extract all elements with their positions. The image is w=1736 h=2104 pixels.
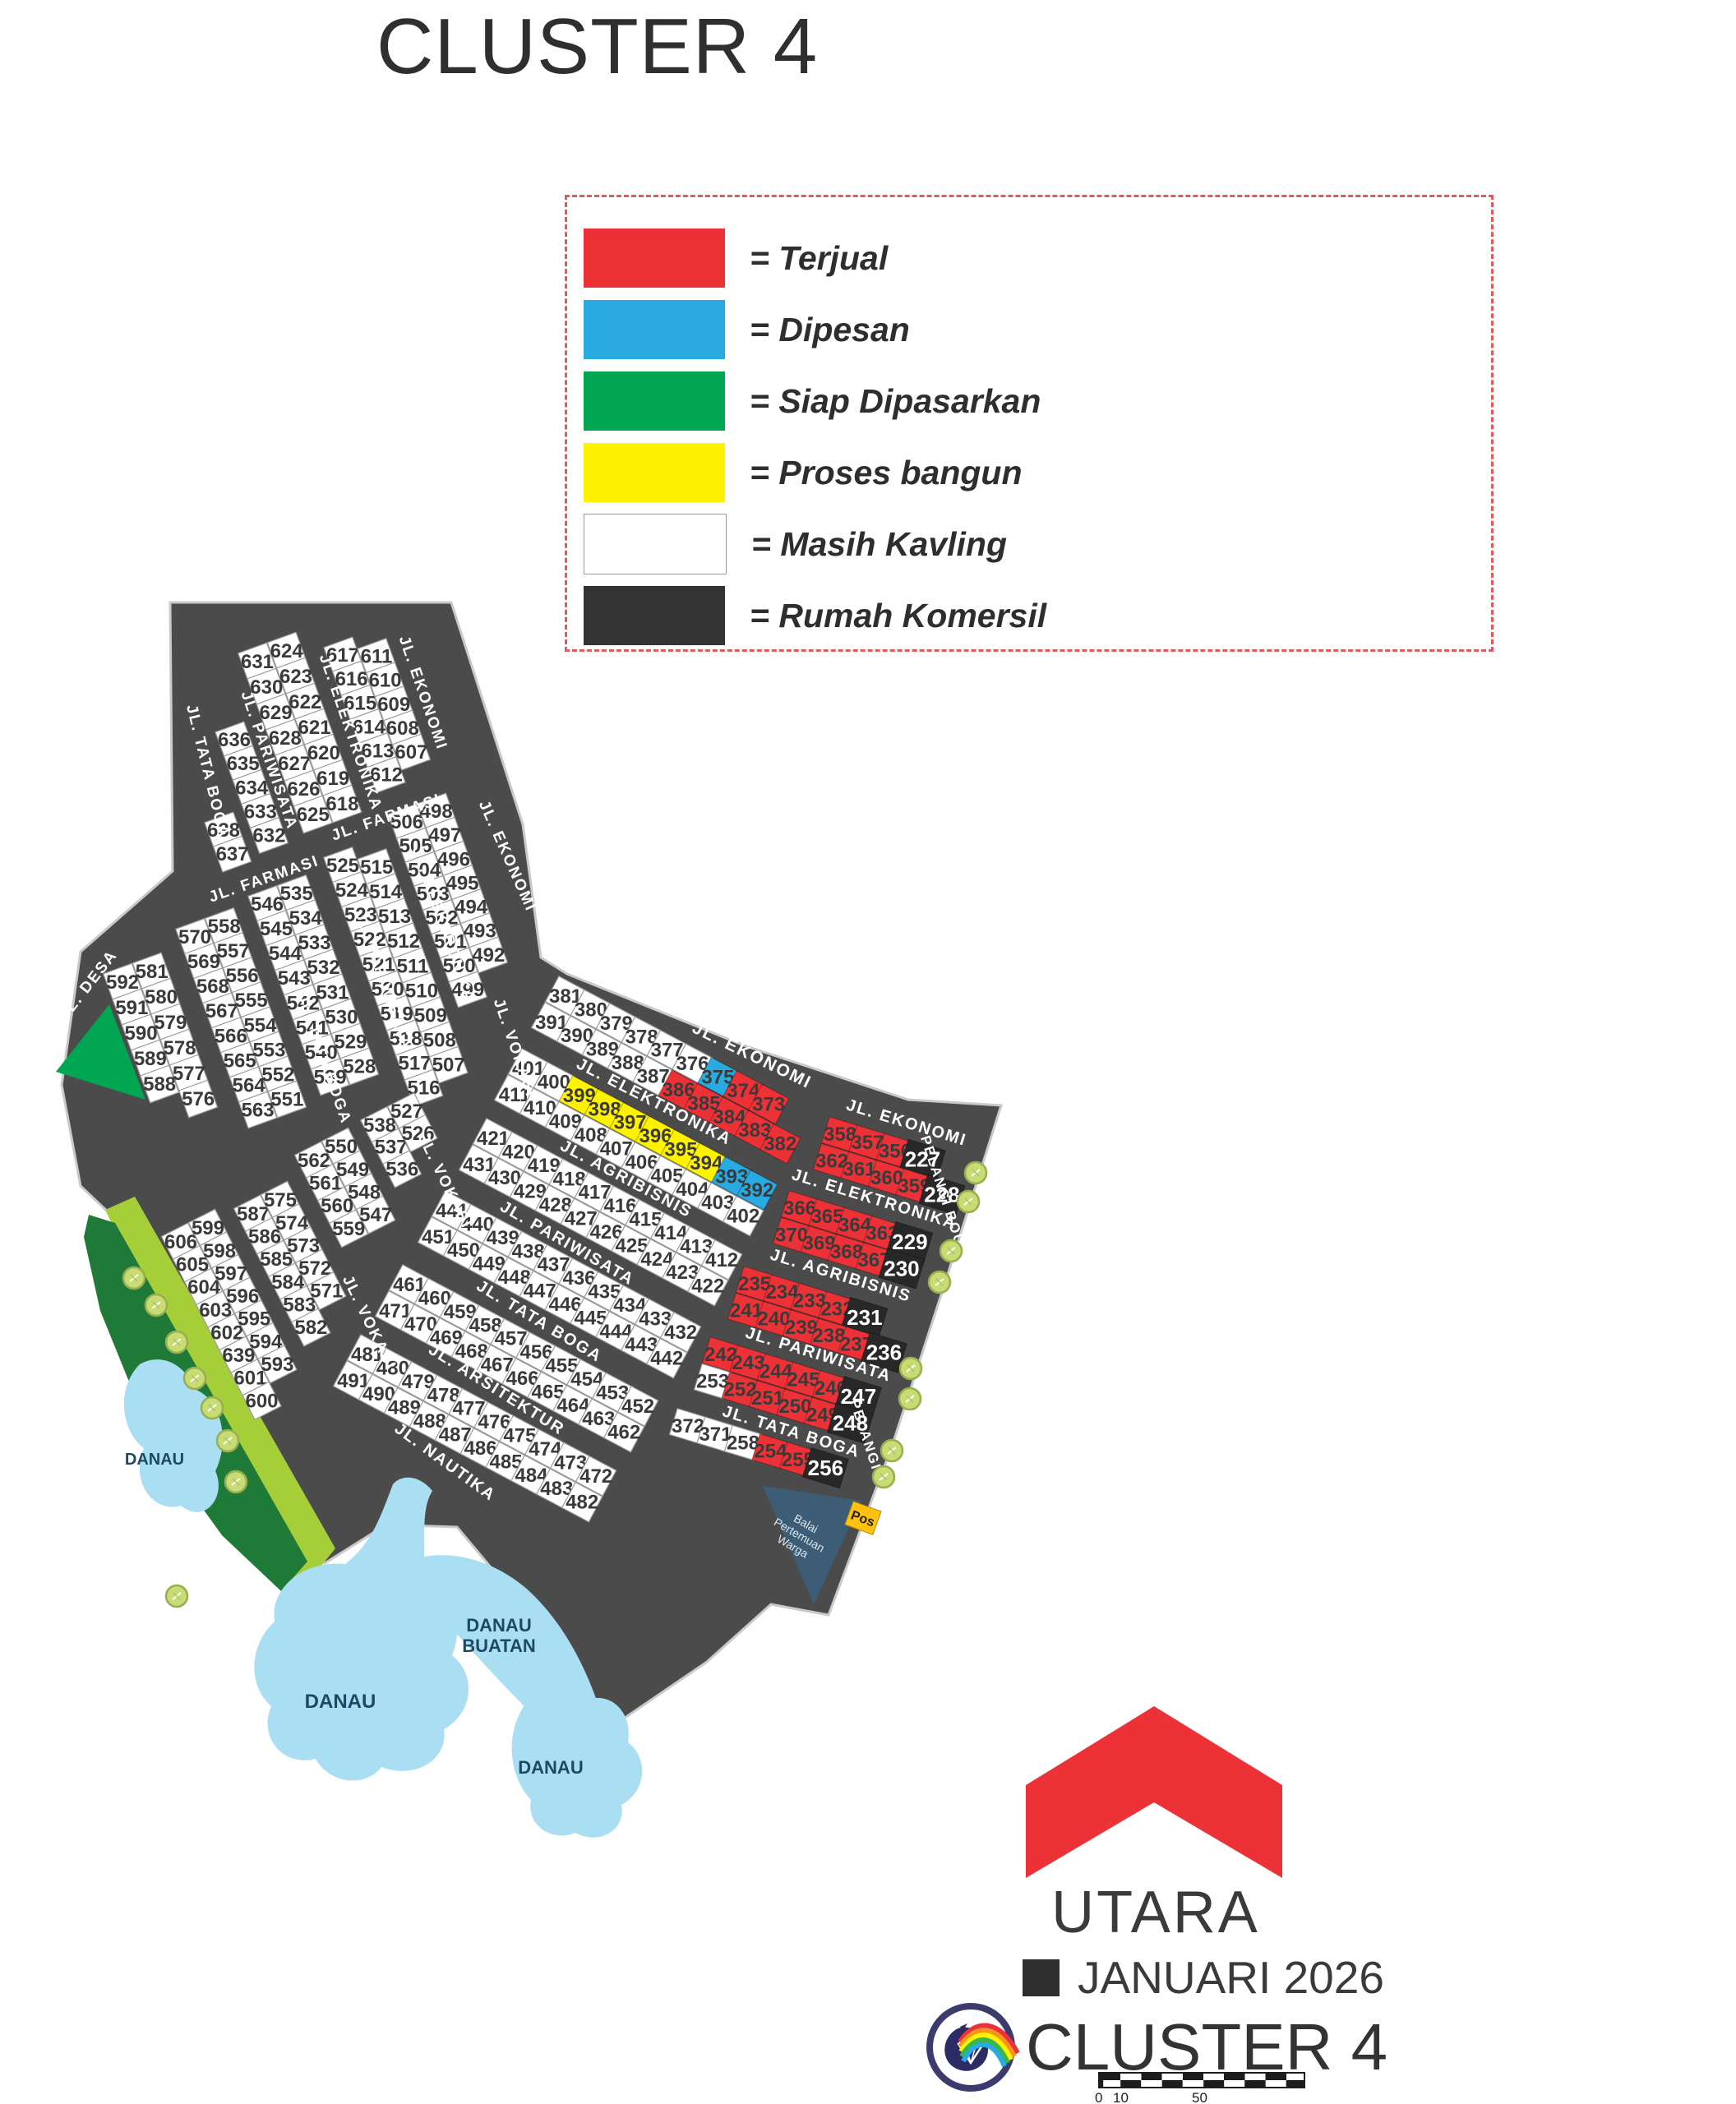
lot-number: 553 [252,1039,285,1061]
lot-number: 544 [269,943,302,965]
scale-bar [1098,2072,1305,2088]
lot-number: 510 [405,980,438,1002]
lot-number: 569 [187,951,220,973]
lot-number: 412 [705,1249,738,1271]
lot-number: 530 [325,1006,358,1028]
lot-number: 618 [325,793,358,815]
tree-icon [881,1440,903,1461]
lot-number: 563 [242,1099,275,1121]
scale-tick-label: 50 [1192,2090,1207,2104]
lot-number: 382 [764,1133,796,1156]
lot-number: 508 [423,1030,456,1052]
lot-number: 452 [621,1396,654,1418]
tree-icon [965,1162,986,1183]
lot-number: 589 [134,1048,167,1070]
lot-number: 624 [270,640,304,662]
lot-number: 564 [233,1074,266,1096]
lot-number: 607 [395,741,427,764]
lot-number: 622 [289,691,321,713]
lot-number: 567 [205,1000,238,1022]
lot-number: 230 [884,1256,919,1280]
lot-number: 513 [378,906,411,928]
tree-icon [899,1388,921,1410]
lot-number: 590 [125,1022,158,1045]
tree-icon [225,1471,247,1493]
lot-number: 592 [106,971,139,994]
lot-number: 627 [278,753,311,775]
lake-label: DANAU [518,1757,583,1778]
tree-icon [201,1397,223,1419]
lot-number: 621 [298,717,331,739]
lot-number: 547 [359,1204,392,1226]
lot-number: 231 [847,1305,882,1330]
lot-number: 256 [808,1456,843,1480]
lot-number: 529 [334,1031,367,1053]
lot-number: 632 [252,825,285,847]
tree-icon [929,1271,950,1293]
lot-number: 528 [343,1055,376,1077]
north-label: UTARA [1024,1879,1287,1946]
scale-tick-label: 10 [1113,2090,1129,2104]
lot-number: 552 [261,1064,294,1086]
lot-number: 593 [261,1354,293,1376]
lot-number: 576 [182,1088,215,1110]
lot-number: 432 [664,1322,697,1344]
date-square-icon [1023,1959,1060,1996]
scale-bar-row [1100,2080,1304,2087]
date-row: JANUARI 2026 [1023,1951,1384,2004]
tree-icon [873,1466,894,1488]
scale-bar-row [1100,2074,1304,2080]
lot-number: 566 [215,1025,247,1047]
lot-number: 571 [310,1280,343,1303]
lot-number: 581 [136,961,169,983]
lot-number: 568 [196,976,229,998]
north-arrow-icon [1024,1703,1287,1880]
tree-icon [123,1267,145,1289]
lot-number: 514 [369,881,403,903]
lot-number: 535 [280,883,313,905]
lot-number: 533 [298,932,331,954]
lot-number: 511 [397,955,429,977]
lot-number: 515 [360,856,393,879]
lot-number: 524 [335,879,369,902]
tree-icon [900,1358,921,1379]
lot-number: 442 [650,1348,683,1370]
lake-label: DANAU [125,1451,184,1469]
lot-number: 532 [307,957,340,979]
lot-number: 551 [270,1088,303,1110]
lot-number: 582 [294,1317,327,1339]
lot-number: 555 [235,990,268,1012]
lot-number: 580 [145,986,178,1008]
lot-number: 626 [287,778,320,801]
lot-number: 507 [432,1054,465,1077]
lot-number: 578 [164,1037,196,1059]
lot-number: 557 [217,940,250,962]
lot-number: 229 [892,1230,927,1254]
tree-icon [166,1585,187,1607]
lot-number: 600 [245,1390,278,1412]
lot-number: 579 [154,1012,187,1034]
lot-number: 554 [243,1014,277,1036]
lot-number: 543 [278,967,311,990]
lot-number: 631 [241,651,274,673]
lot-number: 509 [414,1004,447,1027]
lot-number: 492 [472,944,505,967]
tree-icon [958,1191,979,1212]
lot-number: 620 [307,742,340,764]
lot-number: 619 [316,768,349,790]
lot-number: 588 [143,1073,176,1096]
lake-label: DANAU [305,1691,376,1713]
scale-tick-label: 0 [1095,2090,1102,2104]
lot-number: 534 [289,907,323,930]
lake-label: DANAUBUATAN [462,1615,536,1656]
lot-number: 625 [297,804,330,826]
tree-icon [184,1368,205,1389]
lot-number: 545 [260,918,293,940]
lot-number: 558 [208,916,241,938]
lot-number: 525 [326,855,359,877]
lot-number: 472 [579,1465,612,1488]
lot-number: 482 [566,1492,598,1514]
lot-number: 422 [691,1276,724,1298]
site-map: 6366356346336326386376316306296286276266… [0,0,1736,2104]
lot-number: 637 [216,843,249,865]
lot-number: 536 [386,1158,418,1180]
lot-number: 517 [399,1053,432,1075]
lot-number: 565 [224,1050,256,1072]
lot-number: 373 [752,1093,785,1115]
date-label: JANUARI 2026 [1078,1951,1384,2004]
site-plan-page: CLUSTER 4 = Terjual= Dipesan= Siap Dipas… [0,0,1736,2104]
lot-number: 577 [173,1063,205,1085]
lot-number: 531 [316,981,349,1004]
lot-number: 623 [279,666,312,688]
cluster-logo-icon [924,1999,1021,2096]
lot-number: 402 [727,1206,759,1228]
lot-number: 591 [115,997,148,1019]
lot-number: 556 [226,965,259,987]
lot-number: 570 [178,926,211,948]
tree-icon [217,1430,238,1451]
tree-icon [166,1331,187,1353]
lot-number: 512 [387,930,420,953]
tree-icon [940,1240,962,1262]
lot-number: 546 [251,893,284,916]
lot-number: 392 [741,1179,773,1202]
tree-icon [145,1294,167,1316]
lot-number: 462 [607,1422,640,1444]
